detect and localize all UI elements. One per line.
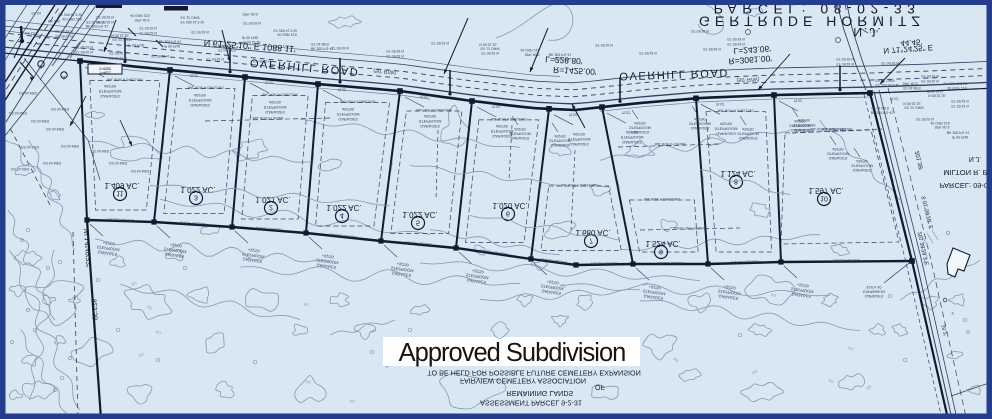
- svg-text:GARAGES: GARAGES: [716, 131, 736, 136]
- svg-text:IP 09 FND: IP 09 FND: [952, 135, 969, 139]
- svg-text:#92'50: #92'50: [720, 121, 733, 126]
- svg-text:75.02': 75.02': [621, 111, 630, 115]
- svg-text:STEPROOM: STEPROOM: [621, 135, 644, 140]
- svg-text:GARAGES: GARAGES: [420, 124, 440, 129]
- svg-text:BK 305 PG 41: BK 305 PG 41: [311, 47, 333, 51]
- svg-text:OS 04 MES: OS 04 MES: [31, 119, 50, 123]
- svg-text:#92'50: #92'50: [694, 117, 705, 121]
- svg-text:GARAGES: GARAGES: [622, 140, 642, 145]
- svg-text:N 09 22.1E: N 09 22.1E: [903, 101, 921, 105]
- svg-text:STEPROOM: STEPROOM: [629, 126, 651, 130]
- svg-text:ST 04 MES: ST 04 MES: [86, 20, 104, 24]
- svg-text:GARAGES: GARAGES: [190, 103, 210, 108]
- svg-text:OS 04 MES: OS 04 MES: [11, 167, 30, 171]
- svg-text:GARAGES: GARAGES: [791, 128, 810, 132]
- svg-text:ST 09'15 N: ST 09'15 N: [139, 26, 157, 30]
- svg-text:GARAGES: GARAGES: [100, 94, 120, 99]
- svg-text:N 09 22.1E: N 09 22.1E: [111, 33, 129, 37]
- svg-text:Y=4821: Y=4821: [99, 71, 111, 75]
- svg-text:212.65': 212.65': [776, 173, 780, 185]
- svg-text:N 09 22.1E: N 09 22.1E: [928, 94, 946, 98]
- svg-text:212.65': 212.65': [700, 176, 705, 188]
- svg-text:BAL NORTH DWELLING: BAL NORTH DWELLING: [416, 108, 452, 112]
- svg-text:302: 302: [770, 293, 776, 298]
- svg-text:GARAGES: GARAGES: [265, 110, 285, 115]
- svg-text:ST 04 MES: ST 04 MES: [903, 86, 921, 90]
- svg-text:BAL NORTH DWELLING: BAL NORTH DWELLING: [561, 183, 597, 187]
- svg-text:MILTON R. BA: MILTON R. BA: [943, 168, 992, 177]
- svg-text:IP 09 FND: IP 09 FND: [242, 36, 259, 40]
- svg-text:BK 305 PG 41: BK 305 PG 41: [86, 24, 108, 28]
- svg-text:GARAGES: GARAGES: [691, 126, 710, 130]
- svg-text:1.597 AC.: 1.597 AC.: [808, 186, 843, 195]
- svg-text:#92'50: #92'50: [573, 132, 586, 137]
- svg-text:BAL NORTH DWELLING: BAL NORTH DWELLING: [491, 117, 527, 121]
- svg-text:DWELL HILLSIDE: DWELL HILLSIDE: [591, 261, 619, 265]
- svg-text:ST 09'15 N: ST 09'15 N: [206, 57, 224, 61]
- svg-text:75.02': 75.02': [264, 81, 273, 85]
- svg-text:ST 09'15 N: ST 09'15 N: [921, 74, 939, 78]
- svg-text:ST 09'15 N: ST 09'15 N: [191, 30, 209, 34]
- svg-text:GARAGES: GARAGES: [338, 117, 358, 122]
- svg-text:GARAGES: GARAGES: [829, 156, 848, 160]
- svg-text:STEPROOM: STEPROOM: [549, 139, 571, 143]
- svg-text:40 GSR 216: 40 GSR 216: [62, 17, 81, 21]
- svg-text:GARAGES: GARAGES: [631, 130, 650, 134]
- svg-text:44.45': 44.45': [900, 37, 923, 48]
- svg-text:EX 12 OHW: EX 12 OHW: [875, 79, 895, 83]
- svg-text:GARAGES: GARAGES: [551, 143, 570, 147]
- svg-text:75.02': 75.02': [715, 102, 724, 106]
- svg-text:TO BE HELD FOR POSSIBLE FUTURE: TO BE HELD FOR POSSIBLE FUTURE CEMETERY …: [427, 369, 641, 378]
- svg-text:212.65': 212.65': [82, 135, 86, 147]
- svg-text:BAL NORTH DWELLING: BAL NORTH DWELLING: [644, 197, 680, 201]
- svg-text:ST 09'15 N: ST 09'15 N: [109, 56, 127, 60]
- svg-text:SPK 40.5: SPK 40.5: [525, 52, 540, 56]
- svg-text:EX 12 OHW: EX 12 OHW: [112, 38, 132, 42]
- svg-text:#92'50: #92'50: [496, 124, 509, 129]
- svg-text:OS 04 MES: OS 04 MES: [131, 169, 150, 173]
- svg-text:40 GSR 216: 40 GSR 216: [930, 121, 949, 125]
- svg-text:SPK 40.5: SPK 40.5: [935, 125, 950, 129]
- svg-text:BAL NORTH DWELLING: BAL NORTH DWELLING: [718, 109, 754, 113]
- svg-text:ST 09'15 N: ST 09'15 N: [951, 99, 969, 103]
- svg-text:ST 09'15 N: ST 09'15 N: [139, 31, 157, 35]
- svg-text:75.02': 75.02': [189, 74, 198, 78]
- svg-text:ST 09'15 N: ST 09'15 N: [727, 42, 745, 46]
- svg-text:STEPROOM: STEPROOM: [189, 98, 212, 103]
- svg-text:ST 09'15 N: ST 09'15 N: [691, 29, 709, 33]
- svg-text:ST 09'15 N: ST 09'15 N: [639, 51, 657, 55]
- svg-text:ST 09'15 N: ST 09'15 N: [55, 34, 73, 38]
- svg-text:STEPROOM: STEPROOM: [689, 122, 711, 126]
- svg-text:ST 09'15 N: ST 09'15 N: [951, 104, 969, 108]
- svg-text:SY 205 41.5 W: SY 205 41.5 W: [180, 20, 204, 24]
- svg-text:BK 305 PG 41: BK 305 PG 41: [549, 53, 571, 57]
- svg-text:ST 09'15 N: ST 09'15 N: [921, 79, 939, 83]
- svg-text:1.124 AC.: 1.124 AC.: [720, 169, 755, 178]
- svg-text:#92'50: #92'50: [269, 100, 282, 105]
- svg-text:ELEV 40: ELEV 40: [867, 285, 882, 289]
- svg-text:GARAGES: GARAGES: [865, 294, 884, 298]
- svg-text:75.02': 75.02': [337, 88, 346, 92]
- svg-text:OS 04 MES: OS 04 MES: [21, 145, 40, 149]
- svg-text:75.02': 75.02': [419, 95, 428, 99]
- svg-text:REMAINING LANDS: REMAINING LANDS: [507, 389, 574, 398]
- svg-text:GARAGES: GARAGES: [569, 142, 589, 147]
- svg-text:ST 09'15 N: ST 09'15 N: [431, 41, 449, 45]
- svg-text:#92'50: #92'50: [856, 159, 867, 163]
- svg-text:OS 04 MES: OS 04 MES: [61, 144, 80, 148]
- svg-text:#92'50: #92'50: [794, 119, 805, 123]
- svg-text:IP 09 FND: IP 09 FND: [554, 57, 571, 61]
- svg-text:ST 09'15 N: ST 09'15 N: [836, 62, 854, 66]
- svg-text:GARAGES: GARAGES: [739, 136, 758, 140]
- svg-text:#92'50: #92'50: [342, 107, 355, 112]
- svg-text:GARAGES: GARAGES: [511, 136, 530, 140]
- svg-text:STEPROOM: STEPROOM: [419, 119, 442, 124]
- svg-text:PARCEL: 09-00: PARCEL: 09-00: [940, 181, 992, 190]
- svg-text:STEPROOM: STEPROOM: [737, 132, 759, 136]
- svg-text:STEPROOM: STEPROOM: [99, 89, 122, 94]
- svg-text:SY 205 41.5 W: SY 205 41.5 W: [273, 28, 297, 32]
- svg-text:X=6585: X=6585: [99, 67, 111, 71]
- svg-text:DWELL HILLSIDE: DWELL HILLSIDE: [731, 259, 759, 264]
- svg-text:#92'50: #92'50: [194, 93, 207, 98]
- svg-text:ST 09'15 N: ST 09'15 N: [595, 43, 613, 47]
- svg-text:(50' R/W): (50' R/W): [736, 76, 759, 83]
- svg-text:ST 04: ST 04: [31, 11, 41, 15]
- svg-text:#92'50: #92'50: [514, 127, 525, 131]
- svg-text:BK 305: BK 305: [48, 19, 60, 23]
- svg-text:BK 305 PG 41: BK 305 PG 41: [947, 131, 969, 135]
- svg-text:STEPROOM: STEPROOM: [568, 137, 591, 142]
- svg-text:OF: OF: [595, 383, 606, 392]
- svg-text:ST 09'15 N: ST 09'15 N: [386, 54, 404, 58]
- svg-text:STEPROOM: STEPROOM: [715, 126, 738, 131]
- svg-text:SPK 40.5: SPK 40.5: [135, 18, 150, 22]
- svg-text:N 09 22.1E: N 09 22.1E: [243, 40, 261, 44]
- svg-text:ST 09'15 N: ST 09'15 N: [75, 50, 93, 54]
- svg-text:1.022 AC.: 1.022 AC.: [326, 203, 361, 212]
- svg-text:302: 302: [303, 302, 309, 306]
- svg-text:STEPROOM: STEPROOM: [509, 132, 531, 136]
- svg-text:STEPROOM: STEPROOM: [264, 105, 287, 110]
- svg-text:N.J.: N.J.: [969, 155, 982, 162]
- svg-text:EX 12: EX 12: [25, 31, 35, 35]
- svg-text:#92'50: #92'50: [104, 84, 117, 89]
- svg-text:ST 09'15 N: ST 09'15 N: [836, 57, 854, 61]
- svg-text:GARAGES: GARAGES: [853, 168, 872, 172]
- svg-text:OS 04 MES: OS 04 MES: [46, 127, 65, 131]
- svg-text:ST 09'15 N: ST 09'15 N: [727, 37, 745, 41]
- svg-text:DWELL HILLSIDE: DWELL HILLSIDE: [833, 258, 861, 262]
- svg-text:BK 305 PG 41: BK 305 PG 41: [871, 110, 893, 114]
- svg-text:BAL NORTH DWELLING: BAL NORTH DWELLING: [262, 93, 298, 97]
- svg-text:75.02': 75.02': [491, 105, 500, 109]
- svg-text:DWELL HILLSIDE: DWELL HILLSIDE: [657, 261, 685, 265]
- svg-text:1.022 AC.: 1.022 AC.: [402, 210, 437, 219]
- svg-text:GERTRUDE HORMITZ: GERTRUDE HORMITZ: [699, 14, 925, 30]
- svg-text:#92'50: #92'50: [554, 134, 565, 138]
- svg-text:EX 12 OHW: EX 12 OHW: [904, 106, 924, 110]
- svg-text:OS 04 MES: OS 04 MES: [43, 161, 62, 165]
- svg-text:ST 09'15 N: ST 09'15 N: [55, 29, 73, 33]
- svg-text:BAL NORTH DWELLING: BAL NORTH DWELLING: [340, 100, 376, 104]
- svg-text:Approved Subdivision: Approved Subdivision: [399, 339, 626, 367]
- svg-text:ST 09'15 N: ST 09'15 N: [109, 51, 127, 55]
- svg-text:SY 205 41.5 W: SY 205 41.5 W: [943, 82, 967, 86]
- svg-text:BK 305 PG 41: BK 305 PG 41: [159, 39, 181, 43]
- svg-text:EXPANSION: EXPANSION: [863, 290, 885, 294]
- svg-text:OS 04 MES: OS 04 MES: [91, 149, 110, 153]
- svg-text:40 GSR 216: 40 GSR 216: [520, 48, 539, 52]
- svg-text:OS 04 MES: OS 04 MES: [9, 111, 28, 115]
- svg-text:EX 12 OHW: EX 12 OHW: [480, 47, 500, 51]
- svg-text:OS 04 MES: OS 04 MES: [19, 91, 38, 95]
- svg-text:N 09 22.1E: N 09 22.1E: [479, 42, 497, 46]
- svg-text:1.524 AC.: 1.524 AC.: [645, 239, 680, 248]
- svg-text:302: 302: [349, 399, 355, 403]
- svg-text:SY 205 41.5 W: SY 205 41.5 W: [58, 13, 82, 17]
- svg-text:ST 09'15 N: ST 09'15 N: [151, 54, 169, 58]
- svg-text:#92'50: #92'50: [634, 121, 645, 125]
- svg-text:ST 09'15 N: ST 09'15 N: [75, 45, 93, 49]
- svg-text:STEPROOM: STEPROOM: [851, 164, 873, 168]
- svg-text:1'': 1'': [951, 311, 955, 316]
- svg-text:#92'50: #92'50: [832, 147, 843, 151]
- svg-text:IP 09 FND: IP 09 FND: [927, 89, 944, 93]
- svg-text:75.02': 75.02': [793, 99, 802, 103]
- svg-text:N.J.: N.J.: [853, 25, 882, 39]
- svg-text:FAIRVIEW CEMETERY ASSOCIATION: FAIRVIEW CEMETERY ASSOCIATION: [460, 377, 586, 386]
- svg-text:#92'50: #92'50: [424, 114, 437, 119]
- svg-text:BAL NORTH DRAIN: BAL NORTH DRAIN: [655, 142, 686, 146]
- svg-text:DWELL HILLSIDE: DWELL HILLSIDE: [107, 217, 135, 222]
- svg-text:BAL NORTH DRAIN: BAL NORTH DRAIN: [253, 116, 284, 120]
- svg-text:ST 09'15 N: ST 09'15 N: [386, 49, 404, 53]
- svg-text:ST 09'15 N: ST 09'15 N: [916, 117, 934, 121]
- svg-text:EX 12 OHW: EX 12 OHW: [180, 15, 200, 19]
- svg-text:BAL NORTH DRAIN: BAL NORTH DRAIN: [822, 127, 853, 131]
- svg-text:STEPROOM: STEPROOM: [789, 124, 811, 128]
- svg-text:1.020 AC.: 1.020 AC.: [492, 201, 527, 210]
- svg-text:SPK 40.5: SPK 40.5: [242, 12, 257, 16]
- svg-text:IP 09 FND: IP 09 FND: [164, 44, 181, 48]
- svg-text:ST 09'15 N: ST 09'15 N: [253, 59, 271, 63]
- svg-text:ST 04 MES: ST 04 MES: [871, 106, 889, 110]
- svg-text:40 GSR 216: 40 GSR 216: [947, 86, 966, 90]
- svg-text:ST 09'15 N: ST 09'15 N: [881, 61, 899, 65]
- svg-text:ST 09'15 N: ST 09'15 N: [331, 46, 349, 50]
- svg-text:1.409 AC.: 1.409 AC.: [104, 181, 139, 190]
- svg-text:1.021 AC.: 1.021 AC.: [255, 195, 290, 204]
- svg-text:OS 04 MES: OS 04 MES: [109, 161, 128, 165]
- svg-text:BAL NORTH DWELLING: BAL NORTH DWELLING: [107, 78, 143, 82]
- svg-text:SPK 40.5: SPK 40.5: [218, 44, 233, 48]
- svg-text:SY 205 41.5 W: SY 205 41.5 W: [875, 83, 899, 87]
- svg-text:40 GSR 216: 40 GSR 216: [277, 33, 296, 37]
- svg-text:40 GSR 216: 40 GSR 216: [130, 14, 149, 18]
- svg-text:IP 09 FND: IP 09 FND: [128, 43, 145, 47]
- svg-text:SPK 40.5: SPK 40.5: [903, 82, 918, 86]
- svg-text:STEPROOM: STEPROOM: [337, 112, 360, 117]
- svg-text:OS 04 MES: OS 04 MES: [51, 107, 70, 111]
- svg-text:ST 04 MES: ST 04 MES: [311, 42, 329, 46]
- svg-text:ST 09'15 N: ST 09'15 N: [96, 15, 114, 19]
- svg-text:ST 04 MES: ST 04 MES: [218, 48, 236, 52]
- svg-text:ST 09'15 N: ST 09'15 N: [243, 21, 261, 25]
- svg-text:ST 09'15 N: ST 09'15 N: [703, 47, 721, 51]
- svg-text:#92'50: #92'50: [742, 127, 753, 131]
- svg-text:ASSESSMENT PARCEL 9-2-31: ASSESSMENT PARCEL 9-2-31: [480, 399, 582, 408]
- svg-text:STEPROOM: STEPROOM: [827, 152, 849, 156]
- svg-text:EXIST. SEPTIC LINE: EXIST. SEPTIC LINE: [674, 226, 707, 230]
